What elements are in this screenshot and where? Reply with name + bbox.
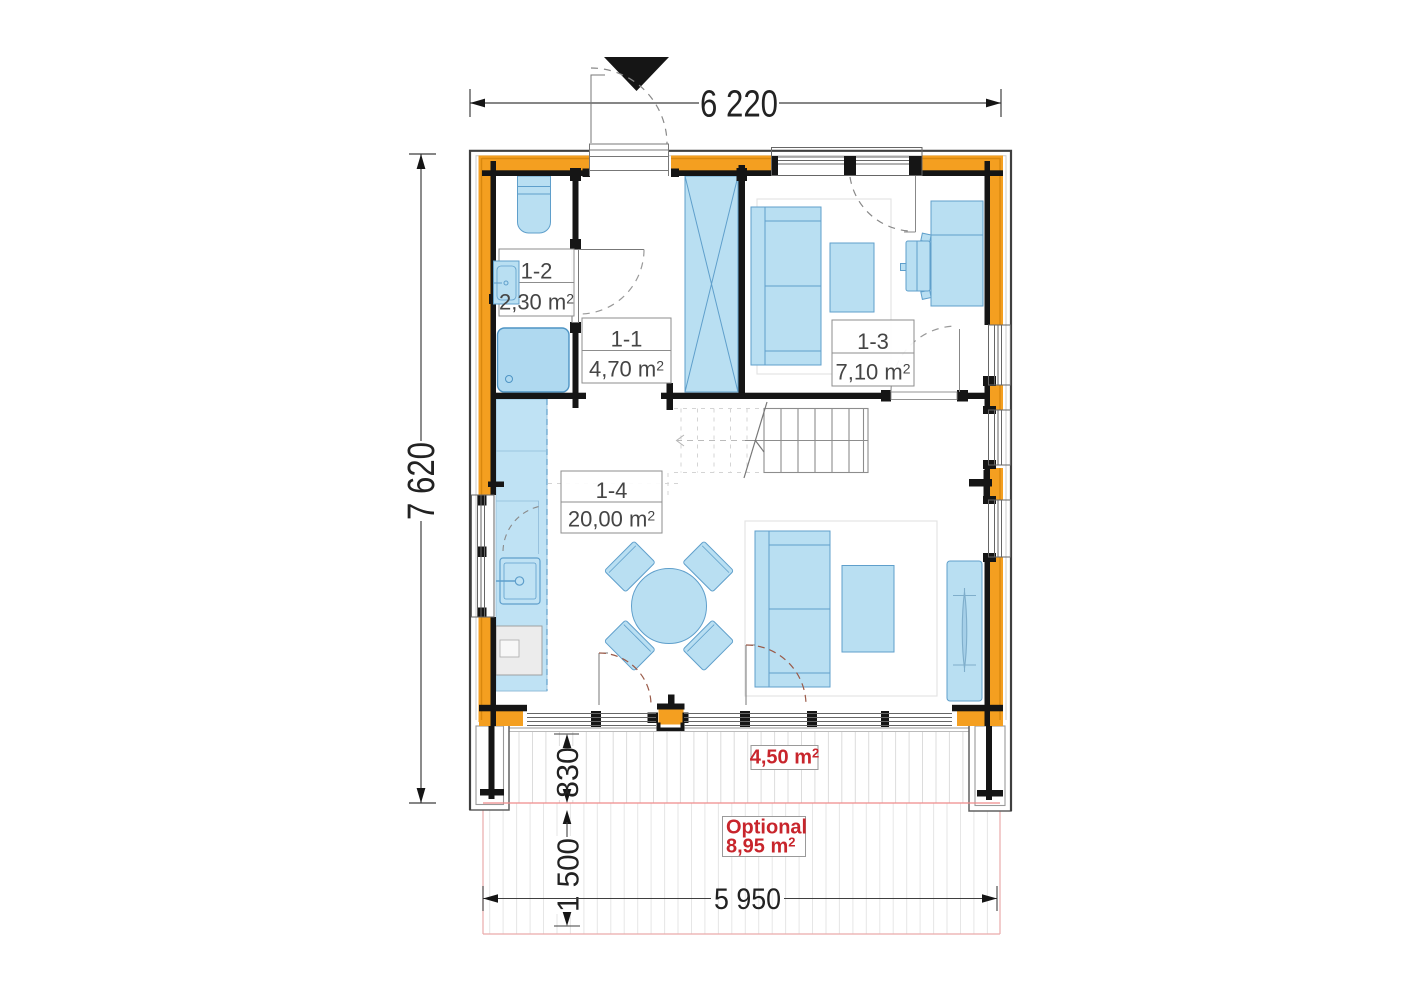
svg-text:7 620: 7 620: [401, 442, 443, 520]
svg-text:20,00 m2: 20,00 m2: [568, 507, 656, 532]
svg-text:5 950: 5 950: [714, 883, 781, 916]
svg-text:1 500: 1 500: [551, 838, 586, 912]
svg-text:7,10 m2: 7,10 m2: [835, 360, 910, 385]
svg-text:830: 830: [550, 747, 585, 798]
svg-text:6 220: 6 220: [700, 84, 778, 126]
svg-text:8,95 m2: 8,95 m2: [726, 835, 796, 858]
svg-text:2,30 m2: 2,30 m2: [499, 290, 574, 315]
svg-text:1-1: 1-1: [611, 327, 643, 352]
svg-text:1-3: 1-3: [857, 329, 889, 354]
svg-text:4,50 m2: 4,50 m2: [750, 746, 820, 769]
svg-text:1-4: 1-4: [596, 478, 628, 503]
svg-text:1-2: 1-2: [521, 259, 553, 284]
svg-text:4,70 m2: 4,70 m2: [589, 357, 664, 382]
